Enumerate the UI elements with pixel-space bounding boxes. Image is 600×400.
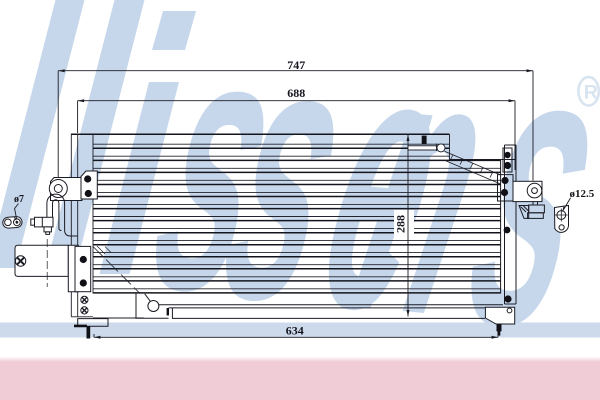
svg-text:R: R <box>584 82 598 104</box>
svg-text:688: 688 <box>287 86 305 100</box>
svg-text:288: 288 <box>394 215 408 233</box>
svg-text:ø7: ø7 <box>14 194 24 205</box>
svg-text:ø12.5: ø12.5 <box>570 188 595 200</box>
svg-text:634: 634 <box>286 324 304 338</box>
svg-text:747: 747 <box>287 58 305 72</box>
